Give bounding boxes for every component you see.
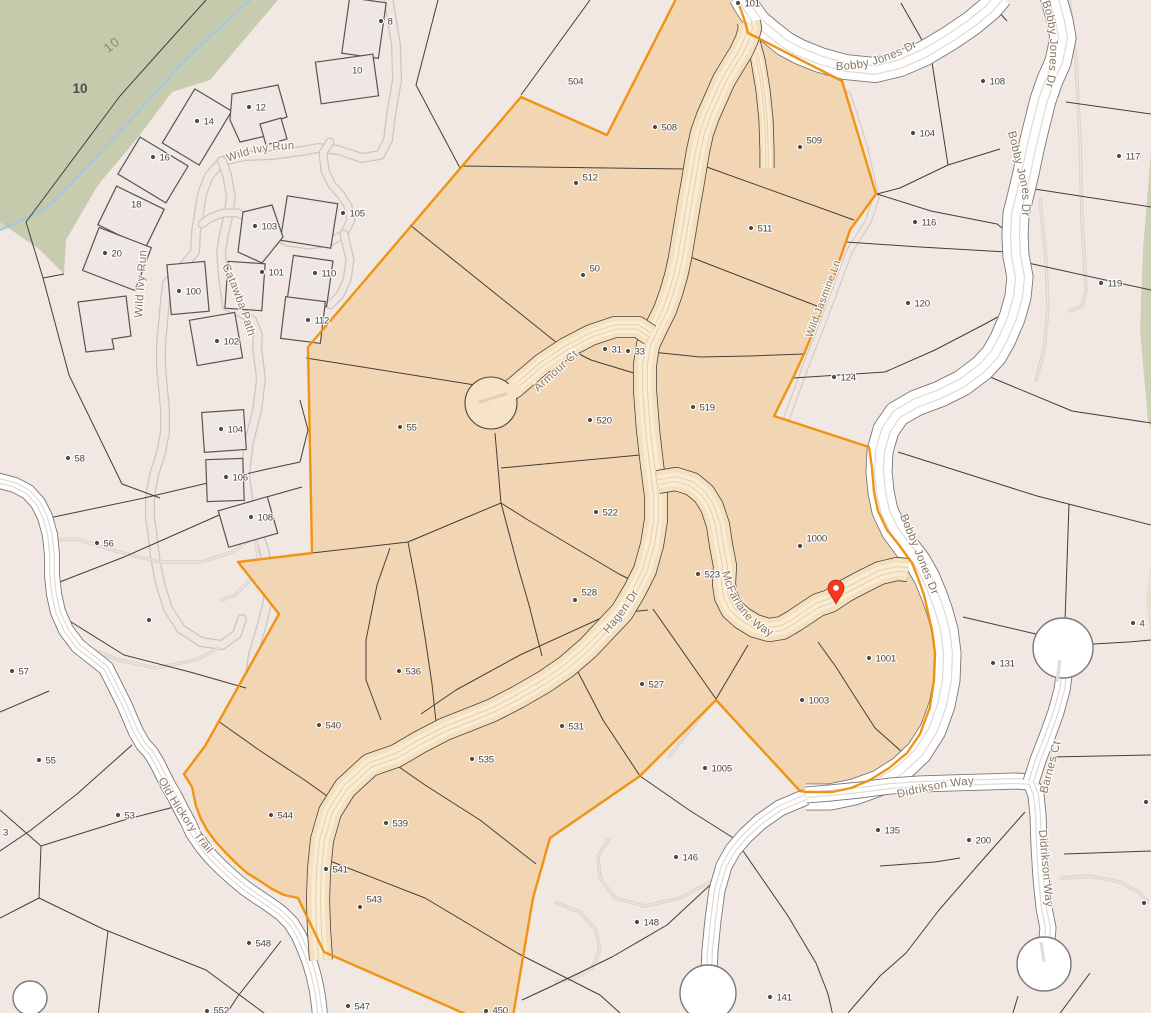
svg-text:1000: 1000 bbox=[807, 534, 828, 545]
svg-text:50: 50 bbox=[590, 264, 600, 275]
svg-text:119: 119 bbox=[1108, 279, 1123, 290]
svg-text:55: 55 bbox=[407, 423, 417, 434]
svg-text:110: 110 bbox=[322, 269, 337, 280]
svg-text:57: 57 bbox=[19, 667, 29, 678]
svg-text:103: 103 bbox=[262, 222, 277, 233]
svg-text:508: 508 bbox=[662, 123, 677, 134]
svg-text:8: 8 bbox=[388, 17, 393, 28]
svg-text:10: 10 bbox=[352, 66, 362, 77]
svg-text:116: 116 bbox=[922, 218, 937, 229]
svg-text:1001: 1001 bbox=[876, 654, 897, 665]
svg-text:523: 523 bbox=[705, 570, 720, 581]
svg-text:131: 131 bbox=[1000, 659, 1015, 670]
svg-text:148: 148 bbox=[644, 918, 659, 929]
svg-text:100: 100 bbox=[186, 287, 201, 298]
svg-text:14: 14 bbox=[204, 117, 215, 128]
svg-text:101: 101 bbox=[745, 0, 760, 10]
svg-text:33: 33 bbox=[635, 347, 645, 358]
svg-text:120: 120 bbox=[915, 299, 930, 310]
svg-text:105: 105 bbox=[350, 209, 365, 220]
svg-text:101: 101 bbox=[269, 268, 284, 279]
svg-text:544: 544 bbox=[278, 811, 294, 822]
svg-text:102: 102 bbox=[224, 337, 239, 348]
svg-text:16: 16 bbox=[160, 153, 170, 164]
svg-text:509: 509 bbox=[807, 136, 822, 147]
svg-text:547: 547 bbox=[355, 1002, 370, 1013]
svg-text:55: 55 bbox=[46, 756, 56, 767]
svg-text:1005: 1005 bbox=[712, 764, 733, 775]
svg-text:4: 4 bbox=[1140, 619, 1146, 630]
svg-text:527: 527 bbox=[649, 680, 664, 691]
svg-text:20: 20 bbox=[112, 249, 122, 260]
svg-text:511: 511 bbox=[758, 224, 773, 235]
svg-text:539: 539 bbox=[393, 819, 408, 830]
svg-text:541: 541 bbox=[333, 865, 348, 876]
svg-text:200: 200 bbox=[976, 836, 991, 847]
svg-text:504: 504 bbox=[568, 77, 584, 88]
svg-text:104: 104 bbox=[228, 425, 244, 436]
svg-text:108: 108 bbox=[258, 513, 273, 524]
svg-text:108: 108 bbox=[990, 77, 1005, 88]
svg-text:106: 106 bbox=[233, 473, 248, 484]
svg-text:124: 124 bbox=[841, 373, 857, 384]
svg-text:18: 18 bbox=[131, 200, 141, 211]
svg-text:10: 10 bbox=[72, 81, 87, 96]
svg-text:53: 53 bbox=[125, 811, 135, 822]
svg-text:141: 141 bbox=[777, 993, 792, 1004]
svg-text:56: 56 bbox=[104, 539, 114, 550]
svg-text:528: 528 bbox=[582, 588, 597, 599]
svg-text:548: 548 bbox=[256, 939, 271, 950]
svg-text:520: 520 bbox=[597, 416, 612, 427]
svg-text:540: 540 bbox=[326, 721, 341, 732]
svg-text:12: 12 bbox=[256, 103, 266, 114]
svg-text:519: 519 bbox=[700, 403, 715, 414]
svg-text:512: 512 bbox=[583, 173, 598, 184]
svg-text:552: 552 bbox=[214, 1006, 229, 1013]
svg-text:522: 522 bbox=[603, 508, 618, 519]
svg-text:135: 135 bbox=[885, 826, 900, 837]
svg-text:1003: 1003 bbox=[809, 696, 830, 707]
svg-text:543: 543 bbox=[367, 895, 382, 906]
svg-text:112: 112 bbox=[315, 316, 330, 327]
svg-text:536: 536 bbox=[406, 667, 421, 678]
svg-text:117: 117 bbox=[1126, 152, 1141, 163]
svg-text:104: 104 bbox=[920, 129, 936, 140]
svg-text:535: 535 bbox=[479, 755, 494, 766]
svg-text:58: 58 bbox=[75, 454, 85, 465]
svg-text:3: 3 bbox=[3, 828, 8, 839]
svg-text:450: 450 bbox=[493, 1006, 508, 1013]
svg-text:531: 531 bbox=[569, 722, 584, 733]
svg-text:146: 146 bbox=[683, 853, 698, 864]
svg-text:31: 31 bbox=[612, 345, 622, 356]
